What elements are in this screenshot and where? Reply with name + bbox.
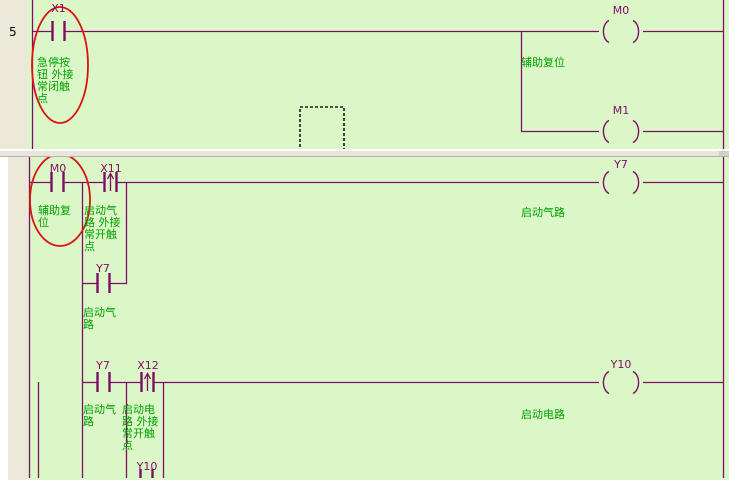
splitter-corner bbox=[719, 151, 729, 156]
coil-m0[interactable] bbox=[603, 21, 638, 43]
ladder-editor-window: 5 bbox=[0, 0, 729, 491]
comment-x11: 启动气 路 外接 常开触 点 bbox=[84, 205, 138, 253]
ladder-pane-top[interactable]: 5 bbox=[0, 0, 729, 149]
comment-y10-coil: 启动电路 bbox=[521, 409, 581, 421]
contact-y7-parallel[interactable] bbox=[82, 273, 127, 293]
comment-x1: 急停按 钮 外接 常闭触 点 bbox=[37, 57, 91, 105]
comment-m0: 辅助复 位 bbox=[38, 205, 80, 229]
device-label-x12: X12 bbox=[131, 360, 165, 372]
coil-m1[interactable] bbox=[603, 121, 638, 143]
circuit-graphics-pane1 bbox=[0, 0, 729, 149]
device-label-m0: M0 bbox=[42, 163, 74, 175]
device-label-y10: Y10 bbox=[129, 461, 165, 473]
device-label-y7-parallel: Y7 bbox=[88, 263, 118, 275]
coil-y7[interactable] bbox=[603, 172, 638, 194]
device-label-y10-coil: Y10 bbox=[597, 359, 645, 371]
device-label-m0: M0 bbox=[597, 5, 645, 17]
contact-y7[interactable] bbox=[82, 372, 110, 392]
coil-y10[interactable] bbox=[603, 372, 638, 394]
device-label-y7-coil: Y7 bbox=[597, 159, 645, 171]
window-bottom-strip bbox=[0, 480, 729, 491]
ladder-pane-bottom[interactable]: M0 辅助复 位 X11 启动气 路 外接 常开触 点 Y7 启动气 路 Y7 … bbox=[0, 157, 729, 480]
comment-y7-coil: 启动气路 bbox=[521, 207, 581, 219]
comment-x12: 启动电 路 外接 常开触 点 bbox=[122, 404, 176, 452]
comment-y7-parallel: 启动气 路 bbox=[83, 307, 125, 331]
device-label-x1: X1 bbox=[45, 3, 72, 15]
device-label-y7: Y7 bbox=[88, 360, 118, 372]
comment-y7: 启动气 路 bbox=[83, 404, 125, 428]
pane-splitter-bar[interactable] bbox=[0, 149, 729, 157]
comment-m0: 辅助复位 bbox=[521, 57, 581, 69]
edit-cursor[interactable] bbox=[300, 107, 344, 149]
device-label-m1: M1 bbox=[597, 105, 645, 117]
contact-x11-rising[interactable] bbox=[105, 172, 117, 192]
contact-x12-rising[interactable] bbox=[142, 372, 154, 392]
device-label-x11: X11 bbox=[95, 163, 127, 175]
